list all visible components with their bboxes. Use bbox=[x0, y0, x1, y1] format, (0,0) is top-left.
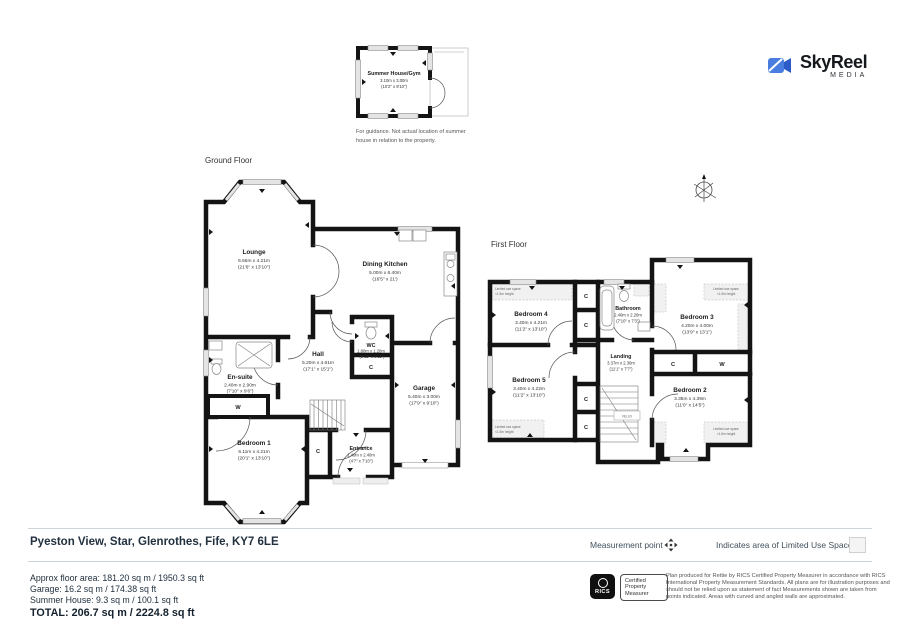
limited-use-text: Limited use space bbox=[713, 287, 739, 291]
room-dims-ensuite-ft: (7'10" x 9'6") bbox=[227, 389, 254, 395]
limited-use-text: Limited use space bbox=[495, 425, 521, 429]
room-label-landing: Landing bbox=[611, 354, 632, 360]
room-dims-bedroom4-ft: (11'2" x 13'10") bbox=[515, 327, 547, 333]
cupboard-label: C bbox=[584, 425, 588, 431]
room-dims-bedroom2-ft: (11'0" x 14'5") bbox=[675, 403, 705, 409]
room-label-bedroom3: Bedroom 3 bbox=[680, 314, 714, 321]
limited-use-text: <1.5m height bbox=[717, 292, 736, 296]
room-label-bedroom4: Bedroom 4 bbox=[514, 311, 548, 318]
room-label-dining-kitchen: Dining Kitchen bbox=[362, 261, 407, 268]
limited-use-text: <1.5m height bbox=[717, 432, 736, 436]
room-dims-hall-ft: (17'1" x 15'1") bbox=[303, 367, 333, 373]
limited-use-text: Limited use space bbox=[713, 427, 739, 431]
summer-house-area: Summer House: 9.3 sq m / 100.1 sq ft bbox=[30, 595, 204, 606]
room-dims-summer-house-m: 3.10m x 3.00m bbox=[380, 78, 408, 83]
property-address: Pyeston View, Star, Glenrothes, Fife, KY… bbox=[30, 536, 279, 548]
brand-name: SkyReel bbox=[800, 52, 867, 72]
divider-bottom bbox=[28, 561, 872, 562]
room-dims-hall-m: 5.20m x 4.61m bbox=[302, 360, 334, 366]
total-area: TOTAL: 206.7 sq m / 2224.8 sq ft bbox=[30, 608, 204, 619]
room-label-ensuite: En-suite bbox=[227, 374, 253, 381]
room-dims-lounge-ft: (21'6" x 13'10") bbox=[238, 265, 271, 271]
summer-house-note-line2: house in relation to the property. bbox=[356, 138, 436, 144]
rics-emblem-icon bbox=[598, 578, 608, 588]
summer-house-decking bbox=[430, 48, 468, 116]
room-dims-bedroom1-ft: (20'1" x 13'10") bbox=[238, 456, 271, 462]
room-dims-bedroom1-m: 6.11m x 4.21m bbox=[238, 449, 269, 455]
legend-limited-use: Indicates area of Limited Use Space bbox=[716, 540, 853, 550]
summer-house-plan: Summer House/Gym 3.10m x 3.00m (10'2" x … bbox=[356, 46, 469, 145]
skyreel-logo-icon bbox=[766, 52, 793, 79]
room-dims-bedroom5-ft: (11'2" x 13'10") bbox=[513, 393, 545, 399]
limited-use-text: Limited use space bbox=[495, 287, 521, 291]
room-dims-bedroom4-m: 3.40m x 4.21m bbox=[515, 320, 547, 326]
legend-measurement-point: Measurement point bbox=[590, 540, 663, 550]
room-label-bedroom5: Bedroom 5 bbox=[512, 377, 546, 384]
room-label-hall: Hall bbox=[312, 351, 324, 358]
limited-use-text: <1.5m height bbox=[495, 430, 514, 434]
cupboard-label: C bbox=[584, 294, 588, 300]
cupboard-label: C bbox=[316, 449, 320, 455]
summer-house-note-line1: For guidance. Not actual location of sum… bbox=[356, 129, 466, 135]
limited-use-text: <1.5m height bbox=[495, 292, 514, 296]
summer-house-door-arc bbox=[430, 78, 445, 108]
first-floor-label: First Floor bbox=[491, 240, 527, 249]
room-dims-entrance-ft: (4'7" x 7'10") bbox=[349, 459, 373, 464]
porch-step bbox=[333, 478, 360, 484]
room-dims-entrance-m: 1.40m x 2.40m bbox=[347, 453, 375, 458]
room-label-bathroom: Bathroom bbox=[615, 306, 641, 312]
ground-stairs bbox=[310, 400, 345, 430]
room-label-garage: Garage bbox=[413, 385, 435, 392]
room-dims-ensuite-m: 2.40m x 2.90m bbox=[224, 383, 256, 389]
room-label-entrance: Entrance bbox=[349, 446, 372, 452]
room-label-lounge: Lounge bbox=[242, 249, 266, 256]
rics-certified-badge: Certified Property Measurer bbox=[620, 574, 668, 601]
velux-label: VELUX bbox=[622, 415, 633, 419]
cupboard-label: C bbox=[671, 362, 675, 368]
room-dims-summer-house-ft: (10'2" x 9'10") bbox=[381, 84, 407, 89]
room-dims-dining-kitchen-m: 5.00m x 6.40m bbox=[369, 270, 401, 276]
first-floor-plan: First Floor VELUX bbox=[488, 240, 751, 462]
room-dims-bathroom-ft: (7'10" x 7'3") bbox=[616, 319, 640, 324]
room-dims-wc-ft: (5'11" x 3'11") bbox=[359, 354, 385, 359]
cupboard-label: C bbox=[584, 323, 588, 329]
room-label-bedroom1: Bedroom 1 bbox=[237, 440, 271, 447]
rics-logo: RICS bbox=[590, 574, 615, 599]
cupboard-label: C bbox=[369, 365, 373, 371]
divider-top bbox=[28, 528, 872, 529]
room-dims-bedroom5-m: 3.40m x 4.22m bbox=[513, 386, 545, 392]
room-dims-garage-m: 5.40m x 3.00m bbox=[408, 394, 440, 400]
garage-area: Garage: 16.2 sq m / 174.38 sq ft bbox=[30, 584, 204, 595]
room-dims-wc-m: 1.80m x 1.20m bbox=[357, 349, 385, 354]
room-dims-dining-kitchen-ft: (16'5" x 21') bbox=[372, 277, 398, 283]
porch-step bbox=[363, 478, 388, 484]
room-dims-garage-ft: (17'9" x 9'10") bbox=[409, 401, 439, 407]
compass-icon bbox=[694, 174, 716, 202]
room-dims-bedroom3-ft: (13'9" x 13'1") bbox=[682, 330, 712, 336]
area-summary: Approx floor area: 181.20 sq m / 1950.3 … bbox=[30, 573, 204, 619]
room-dims-landing-ft: (11'1" x 7'7") bbox=[609, 367, 633, 372]
room-dims-bedroom3-m: 4.20m x 4.00m bbox=[681, 323, 713, 329]
cupboard-label: C bbox=[584, 397, 588, 403]
plan-disclaimer: Plan produced for Rettie by RICS Certifi… bbox=[666, 573, 890, 601]
measurement-point-icon bbox=[664, 538, 678, 552]
ground-floor-plan: Ground Floor W bbox=[204, 156, 461, 524]
skyreel-logo: SkyReel MEDIA bbox=[766, 52, 867, 79]
brand-media: MEDIA bbox=[800, 72, 867, 79]
room-label-summer-house: Summer House/Gym bbox=[367, 71, 420, 77]
room-dims-landing-m: 3.37m x 2.30m bbox=[607, 361, 635, 366]
rics-wordmark: RICS bbox=[595, 589, 610, 595]
limited-use-swatch bbox=[849, 537, 866, 553]
wardrobe-label: W bbox=[235, 405, 241, 411]
floorplan-page: { "brand": {"name": "SkyReel", "media": … bbox=[0, 0, 900, 636]
room-dims-bedroom2-m: 3.35m x 4.39m bbox=[674, 396, 706, 402]
floorplan-canvas: Summer House/Gym 3.10m x 3.00m (10'2" x … bbox=[0, 0, 900, 530]
room-label-bedroom2: Bedroom 2 bbox=[673, 387, 707, 394]
room-dims-bathroom-m: 2.40m x 2.20m bbox=[614, 313, 642, 318]
room-dims-lounge-m: 6.55m x 4.21m bbox=[238, 258, 270, 264]
wardrobe-label: W bbox=[719, 362, 725, 368]
ground-floor-label: Ground Floor bbox=[205, 156, 252, 165]
approx-floor-area: Approx floor area: 181.20 sq m / 1950.3 … bbox=[30, 573, 204, 584]
garage-door bbox=[402, 463, 448, 469]
